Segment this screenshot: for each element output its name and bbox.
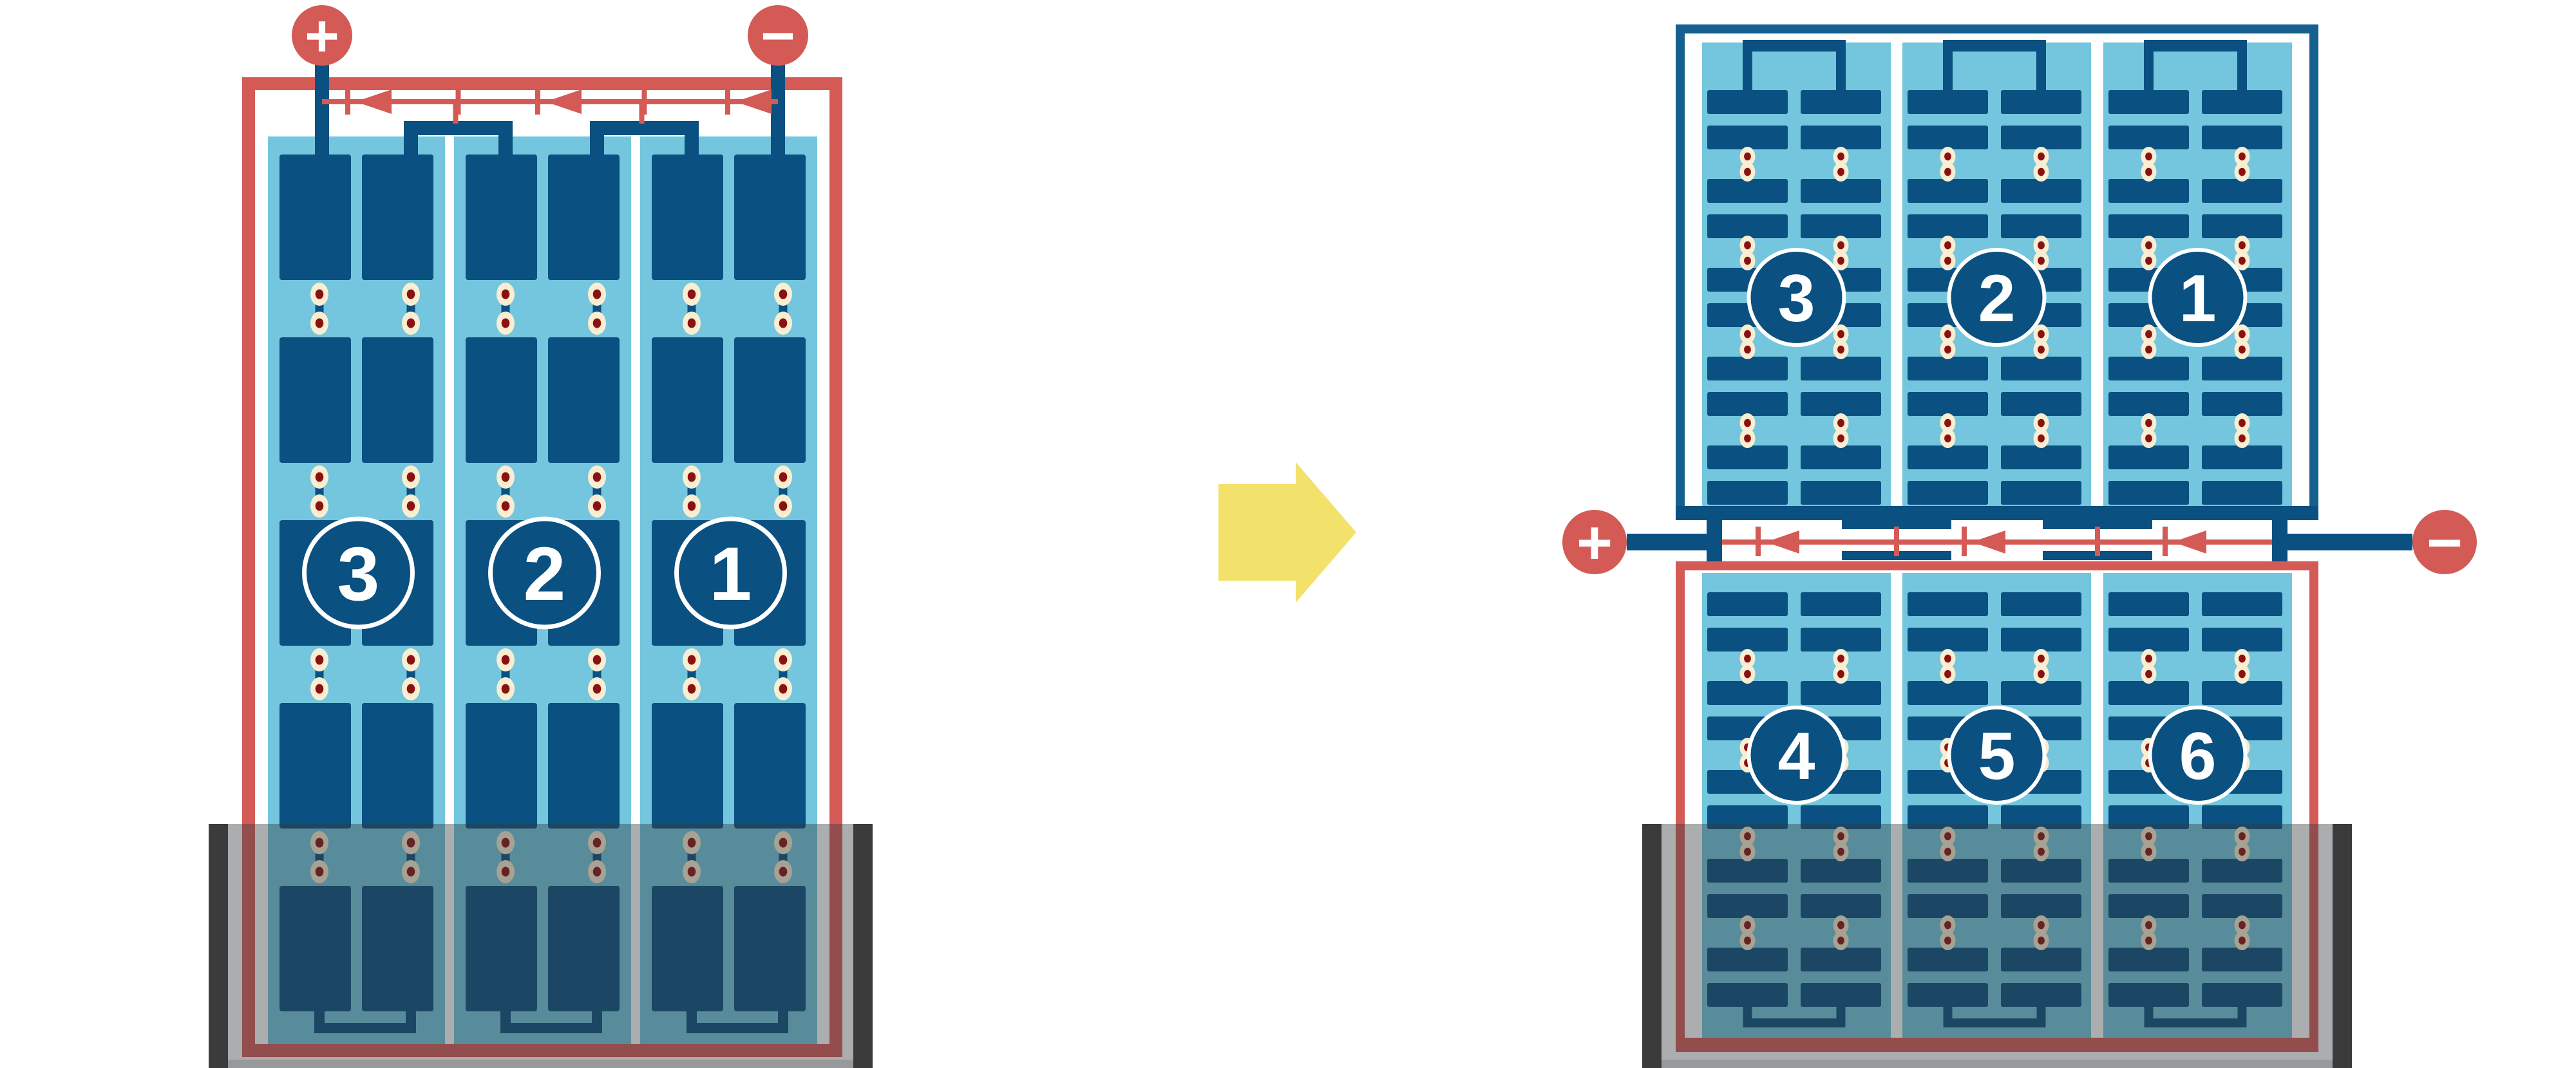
rivet-core-icon	[2145, 655, 2152, 663]
electrode-plate	[2001, 214, 2081, 238]
electrode-plate	[2108, 90, 2189, 114]
electrode-plate	[652, 337, 723, 463]
bridge-leg	[2144, 52, 2154, 91]
electrode-plate	[2108, 628, 2189, 651]
rivet-core-icon	[1744, 435, 1751, 443]
cell-number: 2	[1978, 261, 2016, 336]
bridge-leg	[685, 135, 699, 162]
electrode-plate	[2202, 214, 2282, 238]
rivet-core-icon	[1944, 168, 1951, 176]
rivet-core-icon	[2038, 670, 2045, 679]
electrode-plate	[2202, 392, 2282, 416]
electrode-plate	[1908, 628, 1988, 651]
electrode-plate	[362, 155, 433, 280]
electrode-plate	[279, 337, 351, 463]
negative-terminal-sign: −	[761, 3, 795, 69]
electrode-plate	[466, 337, 537, 463]
electrode-plate	[2108, 681, 2189, 705]
electrode-plate	[2202, 592, 2282, 616]
electrode-plate	[1707, 445, 1788, 469]
rivet-core-icon	[502, 318, 510, 328]
electrode-plate	[1908, 357, 1988, 380]
negative-terminal-sign: −	[2427, 509, 2463, 577]
electrode-plate	[1908, 179, 1988, 203]
rivet-core-icon	[688, 289, 696, 299]
rivet-core-icon	[1944, 330, 1951, 339]
electrode-plate	[2001, 628, 2081, 651]
current-tick	[1756, 527, 1761, 556]
series-link-busbar	[1707, 519, 1722, 561]
electrode-plate	[2202, 445, 2282, 469]
rivet-core-icon	[1837, 168, 1844, 176]
electrode-plate	[2001, 392, 2081, 416]
rivet-core-icon	[2239, 670, 2246, 679]
electrode-plate	[652, 155, 723, 280]
cell-number-badge: 1	[677, 519, 785, 627]
rivet-core-icon	[2239, 257, 2246, 265]
rivet-core-icon	[1944, 435, 1951, 443]
electrode-plate	[2202, 681, 2282, 705]
rivet-core-icon	[2145, 346, 2152, 354]
electrode-plate	[2202, 90, 2282, 114]
rivet-core-icon	[316, 684, 324, 693]
rivet-core-icon	[1744, 257, 1751, 265]
electrode-plate	[1801, 90, 1881, 114]
rivet-core-icon	[688, 472, 696, 482]
cell-number-badge: 6	[2150, 707, 2246, 803]
current-tick	[2095, 527, 2100, 556]
tray-tint-overlay	[209, 824, 873, 1068]
rivet-core-icon	[2239, 435, 2246, 443]
positive-terminal-wire	[315, 63, 329, 270]
rivet-core-icon	[407, 318, 415, 328]
rivet-core-icon	[688, 684, 696, 693]
tray-side-bar	[1642, 824, 1662, 1068]
rivet-core-icon	[407, 501, 415, 511]
rivet-core-icon	[1744, 670, 1751, 679]
bridge-leg	[1943, 52, 1953, 91]
rivet-core-icon	[1944, 655, 1951, 663]
rivet-core-icon	[779, 318, 788, 328]
rivet-core-icon	[688, 655, 696, 664]
electrolyte-tray	[1642, 824, 2352, 1068]
electrode-plate	[734, 703, 806, 829]
cell-number-badge: 3	[1749, 250, 1844, 345]
rivet-core-icon	[2038, 346, 2045, 354]
rivet-core-icon	[316, 318, 324, 328]
electrode-plate	[1801, 445, 1881, 469]
rivet-core-icon	[1944, 241, 1951, 250]
rivet-core-icon	[2038, 419, 2045, 427]
electrode-plate	[2001, 481, 2081, 505]
electrode-plate	[1908, 445, 1988, 469]
electrode-plate	[2108, 592, 2189, 616]
rivet-core-icon	[2038, 655, 2045, 663]
rivet-core-icon	[1744, 241, 1751, 250]
electrode-plate	[1801, 592, 1881, 616]
electrode-plate	[1707, 214, 1788, 238]
electrode-plate	[1707, 481, 1788, 505]
rivet-core-icon	[407, 684, 415, 693]
electrode-plate	[2001, 357, 2081, 380]
cell-number: 6	[2179, 719, 2217, 794]
rivet-core-icon	[688, 318, 696, 328]
electrode-plate	[1801, 179, 1881, 203]
frame-bottom-busbar	[1676, 506, 2318, 520]
electrode-plate	[362, 337, 433, 463]
rivet-core-icon	[593, 289, 601, 299]
rivet-core-icon	[502, 472, 510, 482]
electrode-plate	[1801, 357, 1881, 380]
rivet-core-icon	[2145, 435, 2152, 443]
rivet-core-icon	[2239, 168, 2246, 176]
current-tick	[1962, 527, 1967, 556]
electrode-plate	[1707, 592, 1788, 616]
cell-number: 4	[1778, 719, 1815, 794]
electrode-plate	[2202, 179, 2282, 203]
electrode-plate	[548, 155, 620, 280]
rivet-core-icon	[1837, 419, 1844, 427]
tray-rim	[1642, 1060, 2352, 1068]
bridge-leg	[1836, 52, 1846, 91]
rivet-core-icon	[1744, 419, 1751, 427]
cell-number: 5	[1978, 719, 2016, 794]
rivet-core-icon	[1944, 153, 1951, 161]
frame-left	[1676, 24, 1685, 520]
rivet-core-icon	[2038, 241, 2045, 250]
tray-tint-overlay	[1642, 824, 2352, 1068]
rivet-core-icon	[688, 501, 696, 511]
rivet-core-icon	[2145, 153, 2152, 161]
electrode-plate	[2108, 357, 2189, 380]
electrode-plate	[2202, 357, 2282, 380]
positive-terminal-wire	[1627, 534, 1707, 550]
cell-number: 1	[710, 532, 752, 617]
tray-rim	[209, 1060, 873, 1068]
right-top-panel: 321	[1676, 24, 2318, 520]
cell-number: 1	[2179, 261, 2217, 336]
rivet-core-icon	[1744, 168, 1751, 176]
rivet-core-icon	[2038, 153, 2045, 161]
rivet-core-icon	[1944, 670, 1951, 679]
rivet-core-icon	[1744, 655, 1751, 663]
rivet-core-icon	[593, 501, 601, 511]
electrode-plate	[548, 337, 620, 463]
electrode-plate	[2108, 392, 2189, 416]
cell-number-badge: 2	[1949, 250, 2045, 345]
electrode-plate	[652, 703, 723, 829]
rivet-core-icon	[316, 472, 324, 482]
electrode-plate	[2001, 445, 2081, 469]
bridge-leg	[2036, 52, 2046, 91]
rivet-core-icon	[2038, 435, 2045, 443]
electrode-plate	[2202, 481, 2282, 505]
rivet-core-icon	[1837, 330, 1844, 339]
electrode-plate	[1801, 681, 1881, 705]
cell-number: 3	[337, 532, 380, 617]
rivet-core-icon	[2239, 655, 2246, 663]
electrode-plate	[466, 703, 537, 829]
rivet-core-icon	[1944, 419, 1951, 427]
current-tick	[345, 89, 350, 115]
electrode-plate	[1908, 126, 1988, 149]
bridge-leg	[2237, 52, 2247, 91]
electrode-plate	[466, 155, 537, 280]
left-battery: 321+−	[209, 3, 873, 1068]
rivet-core-icon	[1944, 346, 1951, 354]
rivet-core-icon	[407, 289, 415, 299]
electrode-plate	[1908, 90, 1988, 114]
rivet-core-icon	[502, 684, 510, 693]
electrode-plate	[1707, 126, 1788, 149]
rivet-core-icon	[2038, 257, 2045, 265]
tray-side-bar	[2333, 824, 2352, 1068]
electrode-plate	[1801, 126, 1881, 149]
electrode-plate	[2108, 214, 2189, 238]
cell-number-badge: 3	[305, 519, 413, 627]
cell-number-badge: 1	[2150, 250, 2246, 345]
rivet-core-icon	[593, 655, 601, 664]
current-tick	[2163, 527, 2168, 556]
cell-number-badge: 5	[1949, 707, 2045, 803]
electrode-plate	[1707, 392, 1788, 416]
rivet-core-icon	[502, 501, 510, 511]
electrode-plate	[1908, 592, 1988, 616]
cell-number: 2	[524, 532, 566, 617]
electrode-plate	[1908, 214, 1988, 238]
electrode-plate	[1908, 392, 1988, 416]
frame-top	[1676, 561, 2318, 570]
rivet-core-icon	[593, 684, 601, 693]
electrode-plate	[1908, 681, 1988, 705]
series-link-busbar	[2272, 519, 2287, 561]
current-drop	[453, 104, 459, 124]
rivet-core-icon	[502, 289, 510, 299]
electrode-plate	[1707, 628, 1788, 651]
electrode-plate	[1908, 481, 1988, 505]
rivet-core-icon	[2145, 168, 2152, 176]
bridge-leg	[404, 135, 418, 162]
rivet-core-icon	[1837, 435, 1844, 443]
electrode-plate	[1707, 90, 1788, 114]
electrode-plate	[2001, 179, 2081, 203]
electrode-plate	[734, 155, 806, 280]
rivet-core-icon	[2239, 330, 2246, 339]
bridge-leg	[590, 135, 604, 162]
electrode-plate	[2108, 481, 2189, 505]
electrode-plate	[279, 703, 351, 829]
rivet-core-icon	[2145, 241, 2152, 250]
electrode-plate	[2202, 628, 2282, 651]
rivet-core-icon	[2239, 153, 2246, 161]
electrode-plate	[2108, 179, 2189, 203]
electrode-plate	[2001, 592, 2081, 616]
rivet-core-icon	[407, 472, 415, 482]
rivet-core-icon	[2145, 670, 2152, 679]
rivet-core-icon	[1837, 655, 1844, 663]
electrode-plate	[2108, 445, 2189, 469]
electrode-plate	[2108, 126, 2189, 149]
rivet-core-icon	[1837, 670, 1844, 679]
rivet-core-icon	[1837, 257, 1844, 265]
cell-number: 3	[1778, 261, 1815, 336]
current-tick	[1894, 527, 1899, 556]
rivet-core-icon	[1744, 330, 1751, 339]
electrode-plate	[2202, 126, 2282, 149]
electrode-plate	[2001, 681, 2081, 705]
tray-side-bar	[853, 824, 873, 1068]
current-drop	[639, 104, 645, 124]
rivet-core-icon	[1944, 257, 1951, 265]
bridge-bar	[2144, 40, 2247, 52]
rivet-core-icon	[2038, 168, 2045, 176]
electrode-plate	[1801, 628, 1881, 651]
electrode-plate	[1801, 481, 1881, 505]
electrode-plate	[1801, 392, 1881, 416]
cell-number-badge: 2	[491, 519, 599, 627]
battery-diagram-canvas: 321+−321456+−	[0, 0, 2576, 1068]
current-tick	[535, 89, 540, 115]
rivet-core-icon	[502, 655, 510, 664]
rivet-core-icon	[2145, 330, 2152, 339]
electrode-plate	[1707, 681, 1788, 705]
rivet-core-icon	[2239, 241, 2246, 250]
rivet-core-icon	[2239, 346, 2246, 354]
rivet-core-icon	[593, 318, 601, 328]
bridge-bar	[1943, 40, 2046, 52]
diagram-stage: 321+−321456+−	[0, 0, 2576, 1068]
frame-top	[1676, 24, 2318, 33]
rivet-core-icon	[2145, 419, 2152, 427]
rivet-core-icon	[316, 289, 324, 299]
electrode-plate	[2001, 90, 2081, 114]
rivet-core-icon	[1744, 153, 1751, 161]
electrode-plate	[1801, 214, 1881, 238]
rivet-core-icon	[1744, 346, 1751, 354]
rivet-core-icon	[779, 684, 788, 693]
rivet-core-icon	[1837, 153, 1844, 161]
rivet-core-icon	[593, 472, 601, 482]
frame-top	[242, 77, 842, 90]
positive-terminal-sign: +	[305, 3, 339, 69]
bridge-bar	[1743, 40, 1846, 52]
positive-terminal-sign: +	[1577, 509, 1613, 577]
rivet-core-icon	[779, 655, 788, 664]
electrode-plate	[362, 703, 433, 829]
rivet-core-icon	[316, 655, 324, 664]
rivet-core-icon	[1837, 241, 1844, 250]
rivet-core-icon	[779, 501, 788, 511]
rivet-core-icon	[316, 501, 324, 511]
electrode-plate	[1707, 179, 1788, 203]
electrode-plate	[1707, 357, 1788, 380]
rivet-core-icon	[779, 472, 788, 482]
negative-terminal-wire	[2287, 534, 2412, 550]
rivet-core-icon	[2145, 257, 2152, 265]
rivet-core-icon	[779, 289, 788, 299]
transform-arrow-body	[1218, 484, 1296, 581]
rivet-core-icon	[407, 655, 415, 664]
bridge-leg	[498, 135, 513, 162]
rivet-core-icon	[1837, 346, 1844, 354]
bridge-leg	[1743, 52, 1752, 91]
rivet-core-icon	[2038, 330, 2045, 339]
rivet-core-icon	[2239, 419, 2246, 427]
negative-terminal-wire	[771, 63, 785, 270]
current-tick	[725, 89, 730, 115]
electrode-plate	[2001, 126, 2081, 149]
electrode-plate	[734, 337, 806, 463]
cell-number-badge: 4	[1749, 707, 1844, 803]
electrode-plate	[548, 703, 620, 829]
electrolyte-tray	[209, 824, 873, 1068]
frame-right	[2309, 24, 2318, 520]
tray-side-bar	[209, 824, 228, 1068]
